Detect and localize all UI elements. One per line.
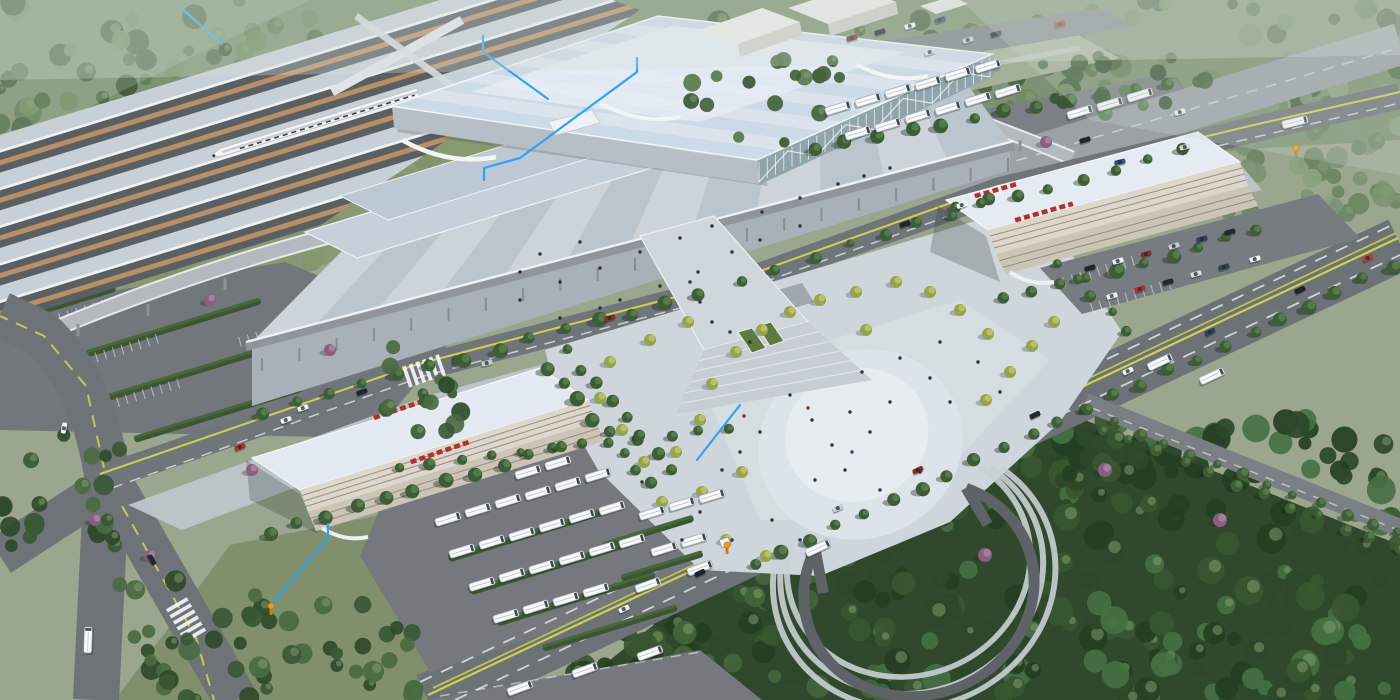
- aerial-render: Aerial architectural rendering of a high…: [0, 0, 1400, 700]
- station-aerial-scene: [0, 0, 1400, 700]
